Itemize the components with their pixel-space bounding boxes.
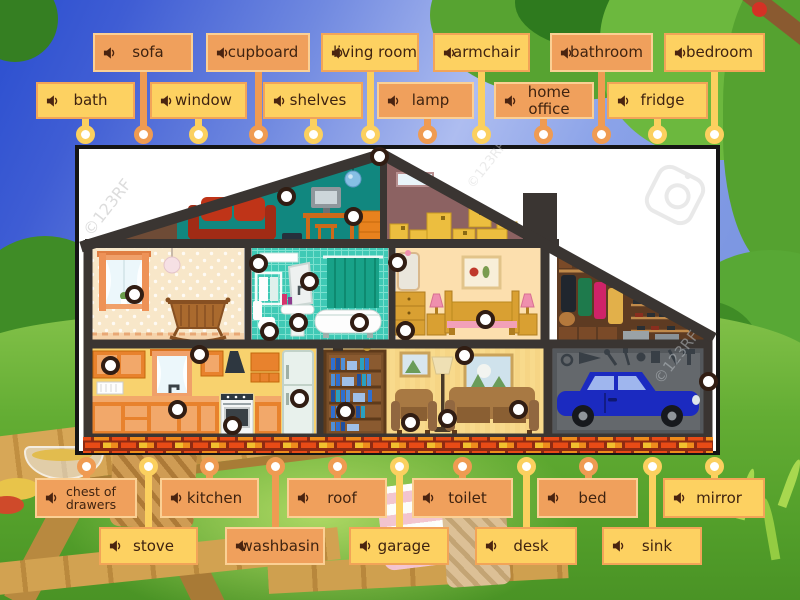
answer-slot-15[interactable] [168, 400, 187, 419]
label-text: kitchen [177, 490, 242, 506]
label-armchair[interactable]: armchair [433, 33, 530, 72]
label-text: mirror [686, 490, 742, 506]
answer-slot-4[interactable] [125, 285, 144, 304]
label-home-office[interactable]: home office [494, 82, 594, 119]
leader-endpoint-chest-of-drawers [77, 457, 96, 476]
label-toilet[interactable]: toilet [412, 478, 513, 518]
label-text: bedroom [676, 44, 753, 60]
leader-endpoint-living-room [361, 125, 380, 144]
speaker-icon [160, 94, 173, 107]
label-text: bath [63, 92, 107, 108]
answer-slot-13[interactable] [101, 356, 120, 375]
answer-slot-11[interactable] [396, 321, 415, 340]
answer-slot-20[interactable] [401, 413, 420, 432]
speaker-icon [443, 46, 456, 59]
game-board: ©123RF ©123RF ©123RF sofa cupboard livin… [0, 0, 800, 600]
speaker-icon [273, 94, 286, 107]
label-text: fridge [631, 92, 685, 108]
label-chest-of-drawers[interactable]: chest of drawers [35, 478, 137, 518]
leader-endpoint-bathroom [592, 125, 611, 144]
leader-endpoint-washbasin [266, 457, 285, 476]
label-stove[interactable]: stove [99, 527, 198, 565]
speaker-icon [109, 540, 122, 553]
label-roof[interactable]: roof [287, 478, 387, 518]
label-mirror[interactable]: mirror [663, 478, 765, 518]
leader-endpoint-bedroom [705, 125, 724, 144]
leader-endpoint-shelves [304, 125, 323, 144]
leader-endpoint-toilet [453, 457, 472, 476]
leader-endpoint-cupboard [249, 125, 268, 144]
label-text: stove [123, 538, 174, 554]
leader-endpoint-mirror [705, 457, 724, 476]
leader-endpoint-sink [643, 457, 662, 476]
speaker-icon [46, 94, 59, 107]
label-sink[interactable]: sink [602, 527, 702, 565]
label-bed[interactable]: bed [537, 478, 638, 518]
leader-endpoint-fridge [648, 125, 667, 144]
speaker-icon [422, 492, 435, 505]
speaker-icon [331, 46, 344, 59]
speaker-icon [612, 540, 625, 553]
answer-slot-17[interactable] [290, 389, 309, 408]
leader-endpoint-garage [390, 457, 409, 476]
label-washbasin[interactable]: washbasin [225, 527, 325, 565]
label-lamp[interactable]: lamp [377, 82, 474, 119]
leader-endpoint-bed [579, 457, 598, 476]
label-text: sink [632, 538, 672, 554]
speaker-icon [560, 46, 573, 59]
label-bath[interactable]: bath [36, 82, 135, 119]
label-bedroom[interactable]: bedroom [664, 33, 765, 72]
label-text: window [165, 92, 232, 108]
label-window[interactable]: window [150, 82, 247, 119]
leader-line-sink [649, 466, 656, 530]
leader-endpoint-lamp [418, 125, 437, 144]
label-text: roof [317, 490, 356, 506]
answer-slot-14[interactable] [190, 345, 209, 364]
label-shelves[interactable]: shelves [263, 82, 363, 119]
leader-line-garage [396, 466, 403, 530]
answer-slot-19[interactable] [455, 346, 474, 365]
speaker-icon [504, 94, 517, 107]
label-sofa[interactable]: sofa [93, 33, 193, 72]
answer-slot-3[interactable] [344, 207, 363, 226]
leader-endpoint-home-office [534, 125, 553, 144]
leader-endpoint-roof [328, 457, 347, 476]
label-text: bed [568, 490, 606, 506]
label-living-room[interactable]: living room [321, 33, 419, 72]
speaker-icon [45, 492, 58, 505]
speaker-icon [103, 46, 116, 59]
answer-slot-2[interactable] [277, 187, 296, 206]
speaker-icon [216, 46, 229, 59]
leader-endpoint-armchair [472, 125, 491, 144]
speaker-icon [547, 492, 560, 505]
leader-line-desk [523, 466, 530, 530]
leader-endpoint-stove [139, 457, 158, 476]
living-room-area [324, 343, 544, 435]
speaker-icon [485, 540, 498, 553]
label-text: sofa [122, 44, 163, 60]
answer-slot-18[interactable] [336, 402, 355, 421]
leader-line-stove [145, 466, 152, 530]
speaker-icon [297, 492, 310, 505]
answer-slot-21[interactable] [438, 409, 457, 428]
answer-slot-23[interactable] [699, 372, 718, 391]
answer-slot-7[interactable] [289, 313, 308, 332]
label-kitchen[interactable]: kitchen [160, 478, 259, 518]
label-garage[interactable]: garage [349, 527, 449, 565]
answer-slot-9[interactable] [350, 313, 369, 332]
speaker-icon [359, 540, 372, 553]
speaker-icon [170, 492, 183, 505]
leader-endpoint-desk [517, 457, 536, 476]
speaker-icon [617, 94, 630, 107]
leader-line-washbasin [272, 466, 279, 530]
leader-endpoint-sofa [134, 125, 153, 144]
label-bathroom[interactable]: bathroom [550, 33, 653, 72]
leader-endpoint-bath [76, 125, 95, 144]
answer-slot-5[interactable] [249, 254, 268, 273]
brick-foundation [83, 437, 713, 453]
speaker-icon [387, 94, 400, 107]
answer-slot-22[interactable] [509, 400, 528, 419]
answer-slot-6[interactable] [300, 272, 319, 291]
leader-endpoint-kitchen [200, 457, 219, 476]
leader-endpoint-window [189, 125, 208, 144]
speaker-icon [674, 46, 687, 59]
label-cupboard[interactable]: cupboard [206, 33, 310, 72]
answer-slot-8[interactable] [260, 322, 279, 341]
label-fridge[interactable]: fridge [607, 82, 708, 119]
bedroom-room [394, 248, 541, 341]
label-text: desk [503, 538, 548, 554]
label-text: shelves [280, 92, 347, 108]
speaker-icon [235, 540, 248, 553]
label-text: toilet [438, 490, 487, 506]
label-text: garage [368, 538, 431, 554]
answer-slot-12[interactable] [476, 310, 495, 329]
answer-slot-16[interactable] [223, 416, 242, 435]
answer-slot-1[interactable] [370, 147, 389, 166]
label-desk[interactable]: desk [475, 527, 577, 565]
nursery-room [91, 248, 244, 342]
label-text: lamp [402, 92, 450, 108]
label-text: cupboard [218, 44, 299, 60]
answer-slot-10[interactable] [388, 253, 407, 272]
speaker-icon [673, 492, 686, 505]
